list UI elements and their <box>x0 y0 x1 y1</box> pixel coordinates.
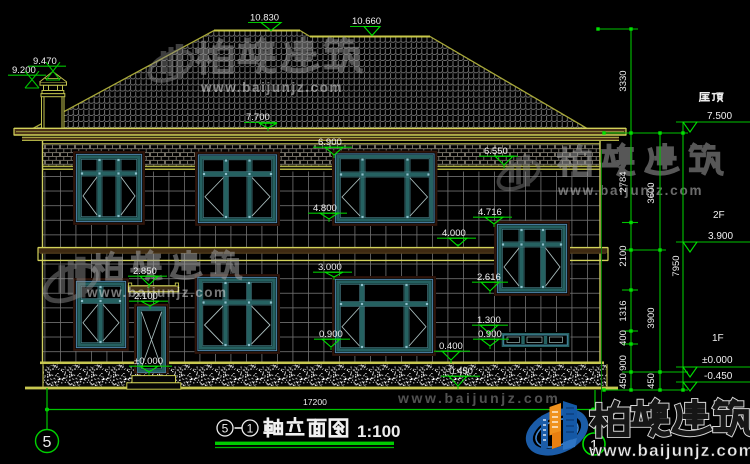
svg-text:1316: 1316 <box>618 300 629 321</box>
svg-text:450: 450 <box>618 373 629 389</box>
svg-text:±0.000: ±0.000 <box>134 356 163 367</box>
svg-text:7.700: 7.700 <box>246 112 270 123</box>
svg-text:-0.450: -0.450 <box>446 366 473 377</box>
svg-text:3.900: 3.900 <box>708 231 733 242</box>
svg-text:9.470: 9.470 <box>33 56 57 67</box>
svg-text:www.baijunjz.com: www.baijunjz.com <box>588 441 750 460</box>
svg-text:900: 900 <box>618 355 629 371</box>
svg-text:3.000: 3.000 <box>318 262 342 273</box>
svg-text:6.900: 6.900 <box>318 137 342 148</box>
svg-text:0.400: 0.400 <box>439 341 463 352</box>
svg-text:400: 400 <box>618 330 629 346</box>
svg-text:3600: 3600 <box>646 182 657 203</box>
svg-text:17200: 17200 <box>303 397 327 407</box>
svg-text:4.716: 4.716 <box>478 207 502 218</box>
svg-text:2F: 2F <box>713 210 725 221</box>
svg-text:9.200: 9.200 <box>12 65 36 76</box>
svg-text:2.616: 2.616 <box>477 272 501 283</box>
svg-text:10.660: 10.660 <box>352 16 381 27</box>
svg-text:www.baijunjz.com: www.baijunjz.com <box>397 390 560 406</box>
svg-text:5: 5 <box>222 422 229 436</box>
svg-text:7.500: 7.500 <box>707 111 732 122</box>
svg-text:1:100: 1:100 <box>357 422 400 441</box>
svg-text:3900: 3900 <box>646 307 657 328</box>
svg-text:4.000: 4.000 <box>442 228 466 239</box>
svg-text:2784: 2784 <box>618 171 629 192</box>
svg-text:450: 450 <box>646 373 657 389</box>
svg-text:1.300: 1.300 <box>477 315 501 326</box>
svg-text:2100: 2100 <box>618 245 629 266</box>
svg-text:www.baijunjz.com: www.baijunjz.com <box>557 183 703 198</box>
svg-text:5: 5 <box>43 434 52 451</box>
svg-text:4.800: 4.800 <box>313 203 337 214</box>
svg-text:2.850: 2.850 <box>133 266 157 277</box>
svg-text:2.100: 2.100 <box>134 291 158 302</box>
svg-text:0.900: 0.900 <box>319 329 343 340</box>
svg-text:-0.450: -0.450 <box>704 371 733 382</box>
svg-text:7950: 7950 <box>671 255 682 276</box>
svg-text:1: 1 <box>247 422 254 436</box>
svg-text:0.900: 0.900 <box>478 329 502 340</box>
svg-text:www.baijunjz.com: www.baijunjz.com <box>200 80 343 95</box>
svg-text:3330: 3330 <box>618 70 629 91</box>
svg-text:±0.000: ±0.000 <box>702 355 733 366</box>
svg-text:1F: 1F <box>712 333 724 344</box>
svg-text:10.830: 10.830 <box>250 13 279 24</box>
svg-text:6.550: 6.550 <box>484 146 508 157</box>
